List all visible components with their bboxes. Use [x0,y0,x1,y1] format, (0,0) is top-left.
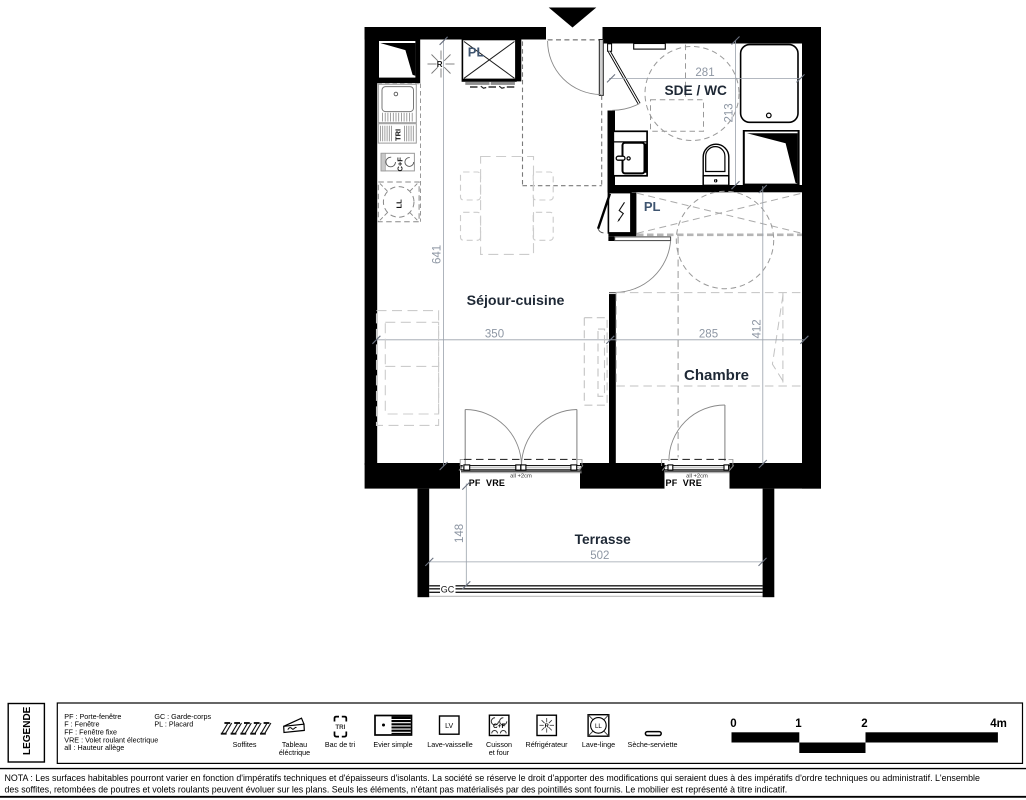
svg-text:R: R [437,60,443,69]
svg-text:all +2cm: all +2cm [510,473,532,479]
svg-text:Lave-vaisselle: Lave-vaisselle [427,740,473,749]
svg-text:2: 2 [861,718,867,730]
svg-text:PL : Placard: PL : Placard [154,720,193,729]
svg-text:412: 412 [751,319,763,338]
svg-text:TRI: TRI [335,724,345,731]
svg-text:148: 148 [454,524,466,543]
svg-text:NOTA : Les surfaces habitables: NOTA : Les surfaces habitables pourront … [5,773,981,783]
svg-text:Soffites: Soffites [233,740,257,749]
svg-text:PF VRE: PF VRE [666,478,702,488]
svg-text:PF VRE: PF VRE [469,478,505,488]
svg-text:LL: LL [595,723,602,730]
svg-text:LEGENDE: LEGENDE [22,706,33,755]
svg-text:Réfrigérateur: Réfrigérateur [526,740,569,749]
svg-text:Lave-linge: Lave-linge [582,740,615,749]
svg-text:641: 641 [431,245,443,264]
svg-text:PL: PL [644,199,661,214]
svg-text:Terrasse: Terrasse [575,532,631,547]
svg-text:SDE / WC: SDE / WC [665,83,727,98]
svg-text:des soffites, retombées de pou: des soffites, retombées de poutres et vo… [5,785,788,795]
svg-text:Sèche-serviette: Sèche-serviette [628,740,678,749]
svg-text:Chambre: Chambre [684,367,749,384]
svg-text:502: 502 [590,550,609,562]
svg-text:C+F: C+F [396,157,405,172]
svg-text:GC: GC [441,584,455,594]
svg-text:281: 281 [695,67,714,79]
svg-text:Evier simple: Evier simple [373,740,412,749]
svg-text:4m: 4m [990,718,1007,730]
svg-text:et four: et four [489,748,510,757]
svg-text:LL: LL [395,199,404,209]
svg-text:285: 285 [699,328,718,340]
svg-text:C+F: C+F [493,723,505,730]
svg-text:éléctrique: éléctrique [279,748,310,757]
svg-text:PL: PL [468,45,485,60]
svg-text:213: 213 [724,103,736,122]
svg-text:TRI: TRI [394,129,403,141]
svg-text:LV: LV [445,723,453,730]
svg-text:all : Hauteur allège: all : Hauteur allège [64,743,124,752]
svg-text:1: 1 [795,718,802,730]
svg-text:350: 350 [485,328,504,340]
svg-text:0: 0 [730,718,736,730]
svg-text:Bac de tri: Bac de tri [325,740,356,749]
svg-text:Séjour-cuisine: Séjour-cuisine [467,293,565,309]
